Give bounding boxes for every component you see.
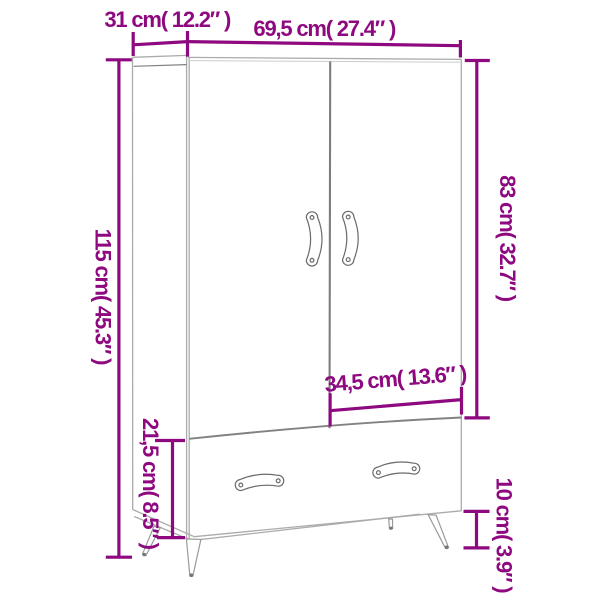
svg-text:83 cm( 32.7″ ): 83 cm( 32.7″ ) bbox=[495, 175, 520, 302]
svg-text:115 cm( 45.3″ ): 115 cm( 45.3″ ) bbox=[90, 229, 115, 366]
svg-text:10 cm( 3.9″ ): 10 cm( 3.9″ ) bbox=[492, 478, 517, 594]
svg-text:31 cm( 12.2″ ): 31 cm( 12.2″ ) bbox=[104, 7, 231, 32]
svg-text:21,5 cm( 8.5″ ): 21,5 cm( 8.5″ ) bbox=[138, 418, 163, 550]
svg-text:69,5 cm( 27.4″ ): 69,5 cm( 27.4″ ) bbox=[253, 16, 396, 41]
